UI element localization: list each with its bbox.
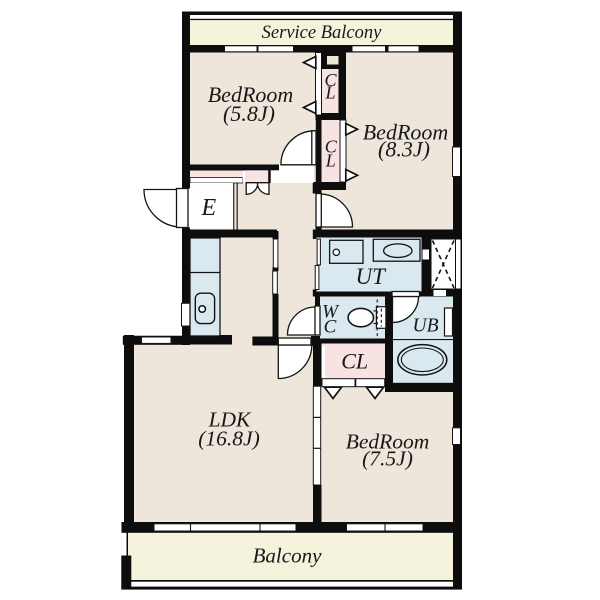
svg-text:L: L <box>325 151 336 171</box>
svg-text:Service Balcony: Service Balcony <box>262 23 382 43</box>
svg-text:(5.8J): (5.8J) <box>223 101 275 126</box>
svg-text:L: L <box>324 83 335 103</box>
svg-text:(7.5J): (7.5J) <box>362 446 413 470</box>
svg-text:UB: UB <box>413 316 439 337</box>
svg-text:(8.3J): (8.3J) <box>378 137 430 162</box>
svg-text:UT: UT <box>355 264 387 289</box>
svg-text:E: E <box>200 195 216 221</box>
svg-text:(16.8J): (16.8J) <box>198 426 260 450</box>
svg-text:CL: CL <box>341 349 368 374</box>
svg-text:C: C <box>324 317 337 338</box>
svg-text:Balcony: Balcony <box>253 544 322 568</box>
